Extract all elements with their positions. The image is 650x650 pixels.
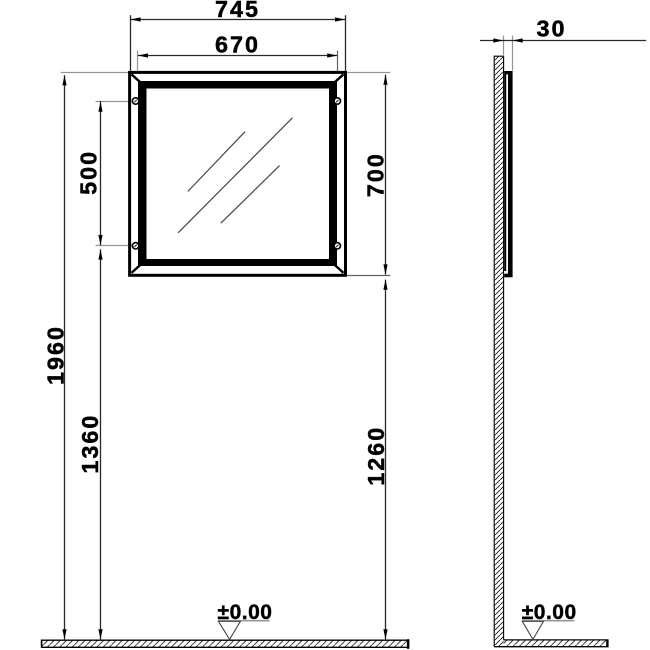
svg-text:500: 500 [76, 150, 102, 195]
svg-text:670: 670 [215, 32, 260, 58]
svg-text:1360: 1360 [77, 414, 103, 474]
svg-text:700: 700 [363, 152, 389, 197]
svg-text:±0.00: ±0.00 [522, 601, 577, 624]
svg-text:1260: 1260 [363, 426, 389, 486]
svg-text:1960: 1960 [43, 325, 69, 385]
svg-text:30: 30 [536, 16, 566, 42]
svg-text:745: 745 [215, 0, 260, 22]
svg-text:±0.00: ±0.00 [218, 601, 273, 624]
